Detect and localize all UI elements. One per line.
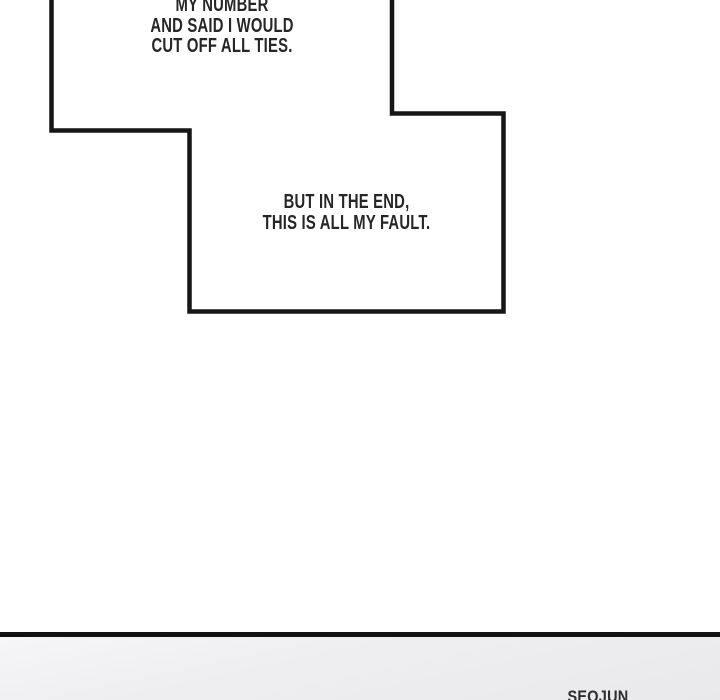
- comic-page: MY NUMBER AND SAID I WOULD CUT OFF ALL T…: [0, 0, 720, 700]
- bubble2-line1: BUT IN THE END,: [230, 192, 463, 213]
- speech-bubble-1-text: MY NUMBER AND SAID I WOULD CUT OFF ALL T…: [96, 0, 348, 57]
- caption-seojun: SEOJUN: [568, 687, 629, 700]
- bubble1-line3: CUT OFF ALL TIES.: [96, 36, 348, 57]
- next-panel-background: SEOJUN: [0, 637, 720, 700]
- bubble2-line2: THIS IS ALL MY FAULT.: [230, 213, 463, 234]
- speech-bubble-2-text: BUT IN THE END, THIS IS ALL MY FAULT.: [230, 192, 463, 233]
- bubble1-line1: MY NUMBER: [96, 0, 348, 16]
- next-panel-caption: SEOJUN: [556, 688, 641, 700]
- bubble1-line2: AND SAID I WOULD: [96, 16, 348, 37]
